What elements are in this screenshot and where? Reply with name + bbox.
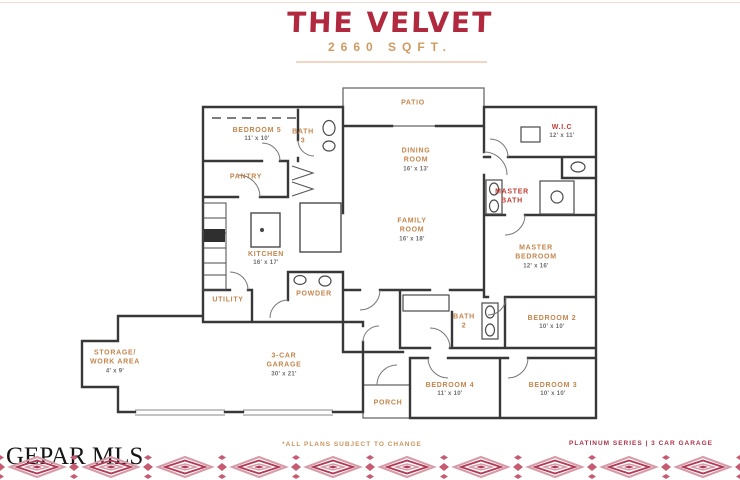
room-name: UTILITY	[212, 296, 243, 303]
room-dims: 12' x 16'	[505, 262, 567, 270]
room-label-garage: 3-CAR GARAGE30' x 21'	[260, 352, 308, 379]
room-label-bedroom-4: BEDROOM 411' x 10'	[414, 381, 486, 399]
room-dims: 16' x 13'	[394, 165, 438, 173]
room-name: POWDER	[296, 290, 332, 297]
room-dims: 10' x 10'	[517, 391, 589, 399]
room-label-powder: POWDER	[284, 289, 344, 298]
room-name: STORAGE/ WORK AREA	[90, 350, 140, 366]
room-label-dining-room: DINING ROOM16' x 13'	[394, 147, 438, 174]
room-label-bedroom-3: BEDROOM 310' x 10'	[517, 381, 589, 399]
room-name: PANTRY	[230, 173, 262, 180]
room-label-bedroom-2: BEDROOM 210' x 10'	[516, 314, 588, 332]
room-dims: 16' x 17'	[234, 260, 298, 268]
room-name: BEDROOM 5	[233, 127, 282, 134]
room-dims: 4' x 9'	[84, 367, 146, 375]
room-label-family-room: FAMILY ROOM16' x 18'	[390, 217, 434, 244]
room-name: PATIO	[401, 99, 425, 106]
bifold-closet-doors	[292, 166, 313, 196]
room-label-utility: UTILITY	[198, 295, 258, 304]
room-dims: 16' x 18'	[390, 235, 434, 243]
room-label-kitchen: KITCHEN16' x 17'	[234, 250, 298, 268]
room-name: MASTER BEDROOM	[515, 245, 556, 261]
room-label-bath-3: BATH 3	[289, 128, 317, 147]
room-name: W.I.C	[552, 124, 573, 131]
room-label-porch: PORCH	[363, 398, 413, 407]
room-label-master-bath: MASTER BATH	[491, 188, 533, 207]
room-name: BEDROOM 4	[426, 382, 475, 389]
room-name: MASTER BATH	[495, 189, 529, 205]
room-name: BATH 2	[453, 314, 475, 330]
room-name: 3-CAR GARAGE	[267, 353, 302, 369]
room-label-bath-2: BATH 2	[450, 313, 478, 332]
room-dims: 12' x 11'	[537, 133, 587, 141]
room-dims: 11' x 10'	[221, 136, 293, 144]
floor-plan-page: THE VELVET 2660 SQFT.	[0, 0, 740, 480]
room-label-bedroom-5: BEDROOM 511' x 10'	[221, 126, 293, 144]
room-label-wic: W.I.C12' x 11'	[537, 123, 587, 141]
plans-disclaimer: *ALL PLANS SUBJECT TO CHANGE	[252, 441, 452, 448]
room-name: BEDROOM 3	[529, 382, 578, 389]
room-label-patio: PATIO	[383, 98, 443, 107]
room-name: BATH 3	[292, 129, 314, 145]
range-appliance	[204, 229, 225, 242]
diamond-border-pattern	[0, 455, 740, 479]
room-label-storage-work-area: STORAGE/ WORK AREA4' x 9'	[84, 349, 146, 376]
room-name: DINING ROOM	[402, 148, 431, 164]
floor-plan-drawing	[0, 0, 740, 480]
room-dims: 10' x 10'	[516, 324, 588, 332]
room-name: FAMILY ROOM	[397, 218, 426, 234]
room-name: KITCHEN	[248, 251, 284, 258]
room-name: PORCH	[374, 399, 403, 406]
room-dims: 30' x 21'	[260, 370, 308, 378]
series-label: PLATINUM SERIES | 3 CAR GARAGE	[569, 440, 713, 447]
room-label-master-bedroom: MASTER BEDROOM12' x 16'	[505, 244, 567, 271]
room-dims: 11' x 10'	[414, 391, 486, 399]
room-name: BEDROOM 2	[528, 315, 577, 322]
room-label-pantry: PANTRY	[216, 172, 276, 181]
